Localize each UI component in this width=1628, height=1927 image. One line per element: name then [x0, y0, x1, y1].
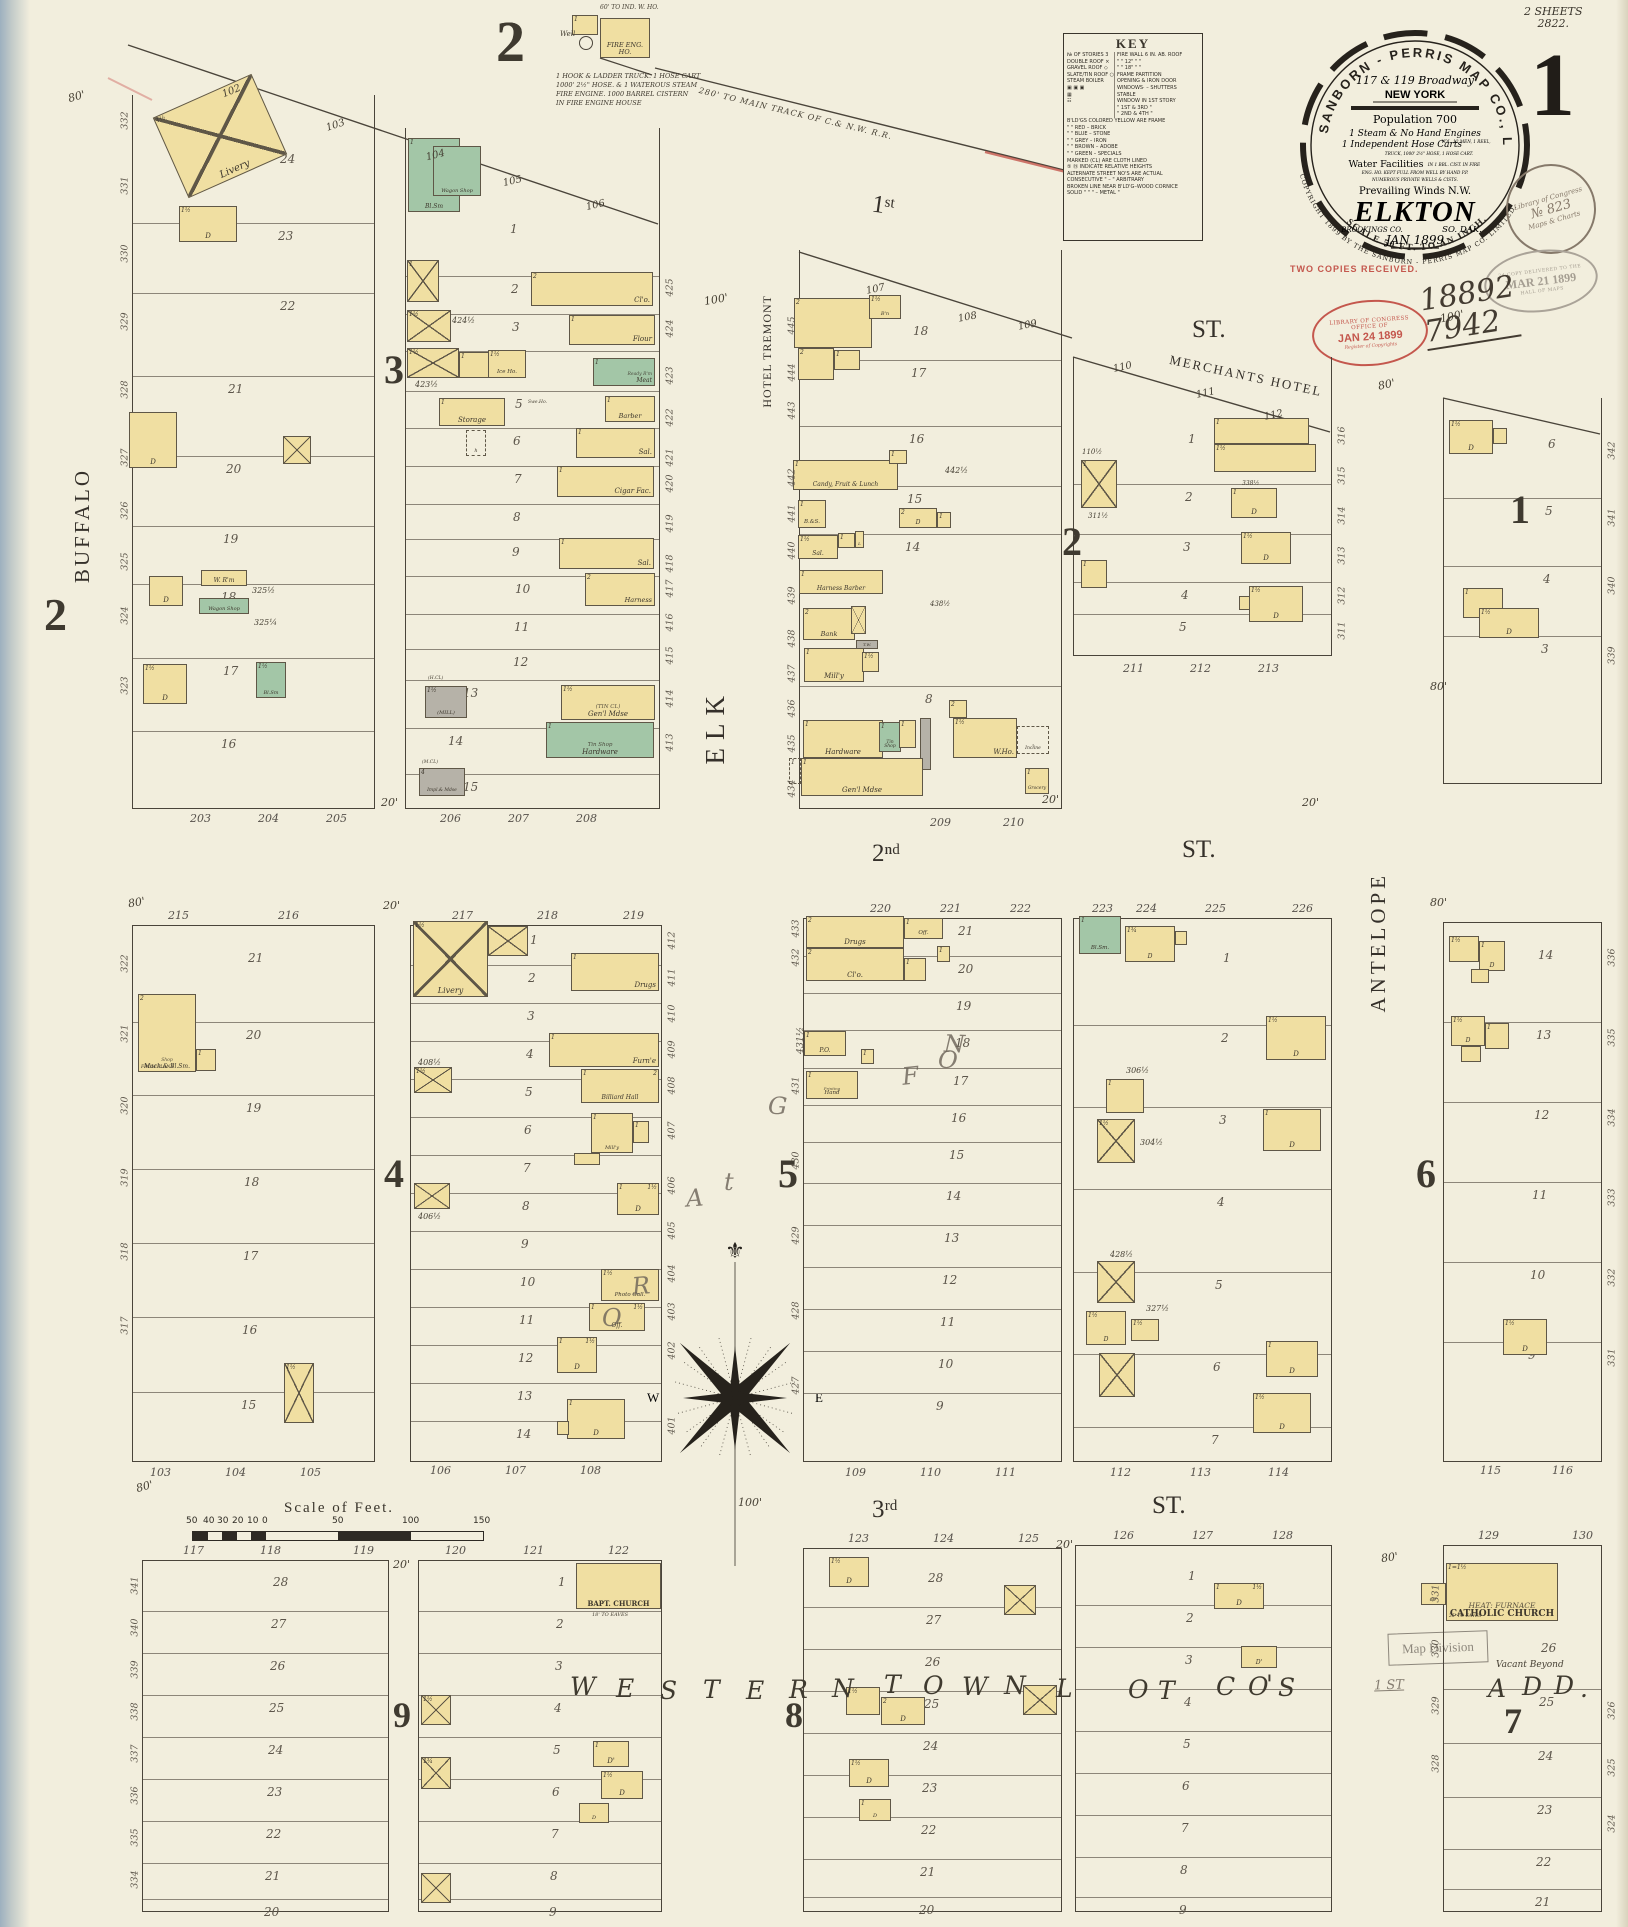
lot-number: 6 — [552, 1785, 560, 1799]
building-label-text: Cl'o. — [634, 297, 650, 304]
plat-name-letter: O — [1128, 1675, 1149, 1704]
key-text-cell: " 1ST & 3RD " — [1115, 105, 1199, 112]
building-label-text: D — [916, 520, 921, 526]
lot-divider — [133, 1169, 374, 1170]
key-symbol-cell: SLATE/TIN ROOF ○ — [1067, 72, 1115, 79]
lot-frontage-number: 205 — [326, 812, 347, 825]
key-row: SLATE/TIN ROOF ○FRAME PARTITION — [1067, 72, 1199, 79]
key-symbol-cell — [1067, 111, 1115, 118]
lot-number: 4 — [1184, 1695, 1192, 1709]
map-annotation: Vacant Beyond — [1496, 1660, 1564, 1670]
building: 2D — [899, 508, 937, 528]
lot-number: 2 — [1221, 1031, 1229, 1045]
building: 1½D — [1503, 1319, 1547, 1355]
scale-tick-label: 50 — [332, 1516, 343, 1526]
building: 1Drugs — [571, 953, 659, 991]
plat-name-letter: T — [884, 1670, 901, 1699]
lot-number: 2 — [556, 1617, 564, 1631]
lot-number: 11 — [514, 620, 529, 634]
hose-note2: TRUCK, 1000' 2½" HOSE, 1 HOSE CART. — [1385, 151, 1474, 156]
scale-tick-label: 40 — [203, 1516, 214, 1526]
scale-bar-segment — [251, 1532, 266, 1540]
lot-number: 15 — [949, 1148, 964, 1162]
lot-number: 21 — [228, 382, 243, 396]
key-row: STEAM BOILEROPENING & IRON DOOR — [1067, 78, 1199, 85]
building: 1D — [859, 1799, 891, 1821]
building-label-text: Gen'l Mdse — [842, 787, 882, 794]
street-address-number: 432 — [791, 948, 802, 966]
building-label-text: D' — [607, 1758, 615, 1765]
scale-tick-label: 30 — [217, 1516, 228, 1526]
lot-frontage-number: 218 — [537, 909, 558, 922]
lot-divider — [804, 1649, 1061, 1650]
building: 1Bl.Sm. — [1079, 916, 1121, 954]
lot-number: 24 — [268, 1743, 283, 1757]
city: NEW YORK — [1385, 89, 1445, 101]
map-annotation: 327½ — [1146, 1304, 1169, 1313]
building-label-text: D — [1522, 1346, 1528, 1353]
lot-divider — [143, 1695, 388, 1696]
height-mark: 1 — [635, 1122, 639, 1129]
key-line: B'LD'GS COLORED YELLOW ARE FRAME — [1067, 118, 1199, 125]
lot-number: 20 — [958, 962, 973, 976]
lot-number: 20 — [226, 462, 241, 476]
street-name-st-: ST. — [1192, 316, 1226, 344]
building: 1D' — [593, 1741, 629, 1767]
building: 11½D — [1214, 1583, 1264, 1609]
pencil-letter: N — [944, 1030, 966, 1059]
building: 1½ — [407, 310, 451, 342]
street-address-number: 338 — [130, 1702, 141, 1720]
height-mark: 1½ — [1216, 445, 1226, 452]
lot-number: 9 — [512, 545, 520, 559]
street-name-st-: ST. — [1182, 836, 1216, 864]
lot-number: 22 — [266, 1827, 281, 1841]
street-address-number: 416 — [665, 613, 676, 631]
street-address-number: 328 — [1431, 1754, 1442, 1772]
street-address-number: 421 — [665, 448, 676, 466]
building-label: D — [1480, 942, 1504, 970]
scan-edge — [0, 0, 30, 1927]
building-label: D — [1215, 1584, 1263, 1608]
pencil-letter: O — [602, 1304, 622, 1332]
lot-number: 1 — [1223, 951, 1231, 965]
lot-frontage-number: 223 — [1092, 902, 1113, 915]
building-label-text: B.&S. — [804, 520, 820, 526]
building: 1½D — [1266, 1016, 1326, 1060]
building-label-text: Cl'o. — [847, 972, 863, 979]
lot-frontage-number: 117 — [183, 1544, 204, 1557]
lot-divider — [1444, 1849, 1601, 1850]
building-label: D — [1450, 421, 1492, 453]
cross-brace-mark — [1082, 461, 1116, 507]
key-symbol-cell: ▣ ▣ ▣ — [1067, 85, 1115, 92]
scale-tick-label: 10 — [247, 1516, 258, 1526]
building-label: Bl.Sm — [257, 663, 285, 697]
height-mark: 1 — [1083, 561, 1087, 568]
lot-frontage-number: 212 — [1190, 662, 1211, 675]
map-annotation: 438½ — [930, 600, 950, 608]
height-mark: 2 — [796, 299, 800, 306]
lot-divider — [133, 1243, 374, 1244]
water-facilities: Water Facilities — [1348, 159, 1423, 170]
street-address-number: 320 — [120, 1096, 131, 1114]
street-address-number: 315 — [1337, 466, 1348, 484]
map-annotation: (H.CL) — [428, 676, 443, 681]
key-line: SOLID " " " – METAL " — [1067, 190, 1199, 197]
lot-divider — [804, 1142, 1061, 1143]
lot-number: 23 — [1537, 1803, 1552, 1817]
lot-divider — [804, 993, 1061, 994]
building: 1Furn'e — [549, 1033, 659, 1067]
street-address-number: 423 — [665, 366, 676, 384]
lot-number: 22 — [1536, 1855, 1551, 1869]
building-label: Mill'y — [805, 649, 863, 681]
lot-number: 1 — [558, 1575, 566, 1589]
lot-divider — [419, 1737, 661, 1738]
paper-edge — [1616, 0, 1628, 1927]
lot-divider — [1076, 1897, 1331, 1898]
lot-frontage-number: 219 — [623, 909, 644, 922]
building-label-text: Gen'l Mdse — [588, 711, 628, 718]
lot-frontage-number: 204 — [258, 812, 279, 825]
lot-divider — [406, 614, 659, 615]
lot-frontage-number: 207 — [508, 812, 529, 825]
building-label-text: D — [150, 459, 156, 466]
street-address-number: 324 — [1607, 1814, 1618, 1832]
plat-name-letter: D — [1522, 1672, 1542, 1701]
building: 1½D — [1249, 586, 1303, 622]
building-label: h — [467, 431, 485, 455]
building: 1½B'n — [869, 295, 901, 319]
building-label: D — [882, 1698, 924, 1724]
building: 1Barber — [605, 396, 655, 422]
street-address-number: 438 — [787, 629, 798, 647]
lot-frontage-number: 107 — [505, 1464, 526, 1477]
lot-number: 1 — [510, 222, 518, 236]
street-address-number: 429 — [791, 1226, 802, 1244]
building-label-text: Harness Barber — [817, 586, 865, 592]
building: 1½Livery — [413, 921, 488, 997]
building-label-text: Incline — [1025, 747, 1041, 752]
lot-divider — [411, 1155, 661, 1156]
lot-divider — [1074, 1189, 1331, 1190]
street-address-number: 415 — [665, 646, 676, 664]
building: 1½Bl.Sm — [256, 662, 286, 698]
lot-number: 2 — [528, 971, 536, 985]
lot-number: 5 — [1183, 1737, 1191, 1751]
building-label: Drugs — [807, 917, 903, 947]
key-symbol-cell — [1067, 105, 1115, 112]
building: 1½ — [862, 652, 879, 672]
plat-name-letter: S — [1278, 1673, 1295, 1702]
height-mark: 1 — [1108, 1080, 1112, 1087]
map-annotation: 424½ — [452, 316, 475, 325]
building: 1 — [834, 350, 860, 370]
building-label: 7Incline — [1018, 727, 1048, 753]
building: 1 — [937, 946, 950, 962]
cross-brace-mark — [285, 1364, 313, 1422]
street-address-number: 402 — [667, 1341, 678, 1359]
lot-divider — [1076, 1647, 1331, 1648]
street-address-number: 330 — [1431, 1639, 1442, 1657]
lot-number: 8 — [522, 1199, 530, 1213]
building: 1 — [904, 958, 926, 981]
scale-tick-label: 50 — [186, 1516, 197, 1526]
building — [1023, 1685, 1057, 1715]
building-label: Harness Barber — [800, 571, 882, 593]
block-d3: 12345678911½DD' — [1075, 1545, 1332, 1912]
lot-frontage-number: 209 — [930, 816, 951, 829]
lot-number: 20 — [919, 1903, 934, 1917]
lot-frontage-number: 129 — [1478, 1529, 1499, 1542]
pencil-letter: F — [901, 1061, 920, 1091]
building-label-text: Livery — [438, 987, 463, 995]
key-text-cell: " " 12" " " — [1115, 59, 1199, 66]
lot-number: 15 — [241, 1398, 256, 1412]
lot-frontage-number: 112 — [1110, 1466, 1131, 1479]
building-label: Grocery — [1026, 769, 1048, 793]
height-mark: 1½ — [423, 1696, 433, 1703]
building: 1Sal. — [559, 538, 654, 569]
cross-brace-mark — [1100, 1354, 1134, 1396]
height-mark: 1¾ — [423, 1758, 433, 1765]
building-label-text: Meat — [636, 378, 652, 384]
street-address-number: 314 — [1337, 506, 1348, 524]
building-sublabel: Ready R'm — [628, 373, 652, 378]
building-label-text: D' — [1256, 1660, 1262, 1666]
building-label: D — [830, 1558, 868, 1586]
building-label: D — [144, 665, 186, 703]
street-address-number: 431½ — [795, 1027, 806, 1054]
block-2-east: 1234511½11D1½D11½D — [1073, 357, 1332, 656]
street-address-number: 406 — [667, 1176, 678, 1194]
building-label: Cl'o. — [807, 949, 903, 980]
lot-divider — [804, 1267, 1061, 1268]
lot-number: 3 — [527, 1009, 535, 1023]
map-annotation: 325¼ — [254, 618, 277, 627]
block-number: 5 — [778, 1150, 798, 1197]
lot-frontage-number: 220 — [870, 902, 891, 915]
building-label: (MILL) — [426, 687, 466, 717]
lot-divider — [143, 1899, 388, 1900]
building: 1Gen'l Mdse — [801, 758, 923, 796]
map-annotation: 338½ — [1242, 480, 1259, 487]
building-label: HEAT: FURNACECATHOLIC CHURCH — [1447, 1564, 1557, 1620]
lot-number: 5 — [1545, 504, 1553, 518]
lot-frontage-number: 130 — [1572, 1529, 1593, 1542]
lot-number: 14 — [905, 540, 920, 554]
height-mark: 1 — [198, 1050, 202, 1057]
street-address-number: 439 — [787, 586, 798, 604]
building: 1½D — [1253, 1393, 1311, 1433]
water-note1: IN 1 BBL. CIST. IN FIRE — [1427, 162, 1480, 167]
dimension-label: 80' — [67, 88, 87, 105]
street-address-number: 440 — [787, 541, 798, 559]
lot-number: 28 — [273, 1575, 288, 1589]
lot-divider — [133, 223, 374, 224]
engines: 1 Steam & No Hand Engines — [1349, 129, 1481, 139]
building-label-text: D — [574, 1364, 580, 1371]
lot-number: 17 — [223, 664, 238, 678]
dimension-label: 80' — [127, 895, 146, 911]
street-name-3-: 3ʳᵈ — [872, 1496, 898, 1524]
block-number: 3 — [384, 346, 404, 393]
lot-number: 8 — [925, 692, 933, 706]
lot-divider — [1076, 1815, 1331, 1816]
lot-number: 9 — [549, 1905, 557, 1919]
street-address-number: 414 — [665, 689, 676, 707]
lot-divider — [143, 1653, 388, 1654]
building-label-text: D — [846, 1578, 852, 1585]
scale-bar-segment — [338, 1532, 411, 1540]
building: 2Harness — [585, 573, 655, 606]
street-address-number: 433 — [791, 919, 802, 937]
lot-frontage-number: 109 — [845, 1466, 866, 1479]
key-line: ⑤ ⑲ INDICATE RELATIVE HEIGHTS — [1067, 164, 1199, 171]
building: 1½D — [179, 206, 237, 242]
lot-frontage-number: 206 — [440, 812, 461, 825]
building: 1Harness Barber — [799, 570, 883, 594]
lot-number: 14 — [946, 1189, 961, 1203]
building: 1½ — [1097, 1119, 1135, 1163]
building-label: D — [1087, 1312, 1125, 1344]
population: Population 700 — [1373, 113, 1457, 126]
lot-divider — [1444, 1797, 1601, 1798]
street-address-number: 325 — [1607, 1758, 1618, 1776]
map-annotation: (M.CL) — [422, 760, 438, 765]
lot-number: 4 — [1543, 572, 1551, 586]
block-4: 12345678910111213141½Livery1Drugs1Furn'e… — [410, 925, 662, 1462]
building-sublabel: Tin Shop — [588, 743, 613, 749]
lot-frontage-number: 225 — [1205, 902, 1226, 915]
lot-divider — [804, 1309, 1061, 1310]
lot-number: 12 — [518, 1351, 533, 1365]
building-label-text: D — [1466, 1038, 1471, 1044]
lot-number: 11 — [940, 1315, 955, 1329]
building-label-text: D — [1279, 1424, 1285, 1431]
building: 1Grocery — [1025, 768, 1049, 794]
building-sublabel: HEAT: FURNACE — [1468, 1602, 1535, 1610]
lot-number: 21 — [958, 924, 973, 938]
lot-divider — [804, 1817, 1061, 1818]
street-address-number: 410 — [667, 1004, 678, 1022]
lot-number: 15 — [463, 780, 478, 794]
building: 1Mill'y — [804, 648, 864, 682]
map-annotation: Swe.Ho. — [528, 400, 547, 405]
building-label: Harness — [586, 574, 654, 605]
lot-number: 5 — [525, 1085, 533, 1099]
lot-frontage-number: 126 — [1113, 1529, 1134, 1542]
water-note2: ENG. HO. KEPT FULL FROM WELL BY HAND P.P… — [1361, 170, 1469, 175]
street-address-number: 443 — [787, 401, 798, 419]
building: 1 — [838, 533, 855, 548]
lot-number: 5 — [515, 397, 523, 411]
building-label-text: D — [900, 1716, 906, 1723]
lot-frontage-number: 127 — [1192, 1529, 1213, 1542]
lot-number: 26 — [270, 1659, 285, 1673]
dimension-label: 80' — [1430, 680, 1447, 693]
building-label: D — [1504, 1320, 1546, 1354]
building-label: D — [850, 1760, 888, 1786]
map-annotation: 306½ — [1126, 1066, 1149, 1075]
lot-number: 22 — [280, 299, 295, 313]
building: 1½ — [284, 1363, 314, 1423]
scale-bar-segment — [266, 1532, 339, 1540]
building: 1½ — [1214, 444, 1316, 472]
map-annotation: 408½ — [418, 1058, 441, 1067]
building — [1099, 1353, 1135, 1397]
cross-brace-mark — [422, 1874, 450, 1902]
building: 1½D — [1451, 1016, 1485, 1046]
lot-divider — [804, 1393, 1061, 1394]
lot-number: 20 — [264, 1905, 279, 1919]
key-text-cell: OPENING & IRON DOOR — [1115, 78, 1199, 85]
key-symbol-cell: STEAM BOILER — [1067, 78, 1115, 85]
building: 1 — [572, 15, 598, 35]
plat-name-letter: S — [660, 1676, 677, 1705]
street-address-number: 311 — [1337, 621, 1348, 639]
building-label: D — [1250, 587, 1302, 621]
lot-number: 28 — [928, 1571, 943, 1585]
street-name-antelope: ANTELOPE — [1366, 872, 1391, 1013]
building: 1Off. — [904, 918, 943, 939]
building-label: P.O. — [805, 1032, 845, 1055]
street-address-number: 428 — [791, 1301, 802, 1319]
building — [1004, 1585, 1036, 1615]
handwritten-accession-numbers: 188927942 — [1417, 271, 1522, 351]
lot-divider — [1076, 1731, 1331, 1732]
lot-frontage-number: 215 — [168, 909, 189, 922]
two-copies-received-stamp: TWO COPIES RECEIVED. — [1290, 264, 1419, 274]
building: 1½(MILL) — [425, 686, 467, 718]
lot-number: 3 — [512, 320, 520, 334]
street-address-number: 316 — [1337, 426, 1348, 444]
lot-number: 17 — [911, 366, 926, 380]
building-label-text: W. R'm — [214, 578, 235, 584]
scale-bar — [192, 1531, 484, 1541]
lot-divider — [143, 1863, 388, 1864]
street-address-number: 335 — [130, 1828, 141, 1846]
lot-number: 21 — [265, 1869, 280, 1883]
lot-number: 5 — [1179, 620, 1187, 634]
state: SO. DAK. — [1442, 225, 1482, 235]
plat-name-letter: N — [1004, 1671, 1026, 1700]
block-buffalo-south: 212019181716152ShopMach.& Bl.Sm.FROM PLA… — [132, 925, 375, 1462]
scale-bar-title: Scale of Feet. — [284, 1500, 394, 1517]
building: 1½D — [601, 1771, 643, 1799]
dimension-label: 100' — [738, 1496, 762, 1509]
lot-number: 16 — [909, 432, 924, 446]
building: 1Tin Shop — [879, 722, 901, 752]
building-label: W.Ho. — [954, 719, 1016, 757]
street-address-number: 312 — [1337, 586, 1348, 604]
street-address-number: 334 — [1607, 1108, 1618, 1126]
key-row: DOUBLE ROOF ×" " 12" " " — [1067, 59, 1199, 66]
building-label-text: D — [1236, 1600, 1242, 1607]
building-label-text: D — [592, 1816, 596, 1821]
building-label: BAPT. CHURCH — [577, 1564, 660, 1608]
building: 1½D — [849, 1759, 889, 1787]
map-annotation: 406½ — [418, 1212, 441, 1221]
building: 1 — [937, 512, 951, 528]
dimension-label: 80' — [1430, 896, 1447, 909]
building-note: FROM PLANS — [141, 1065, 174, 1070]
block-number: 2 — [496, 8, 525, 75]
height-mark: 1½ — [1133, 1320, 1143, 1327]
street-address-number: 328 — [120, 380, 131, 398]
building-sublabel: Printing — [824, 1087, 840, 1091]
